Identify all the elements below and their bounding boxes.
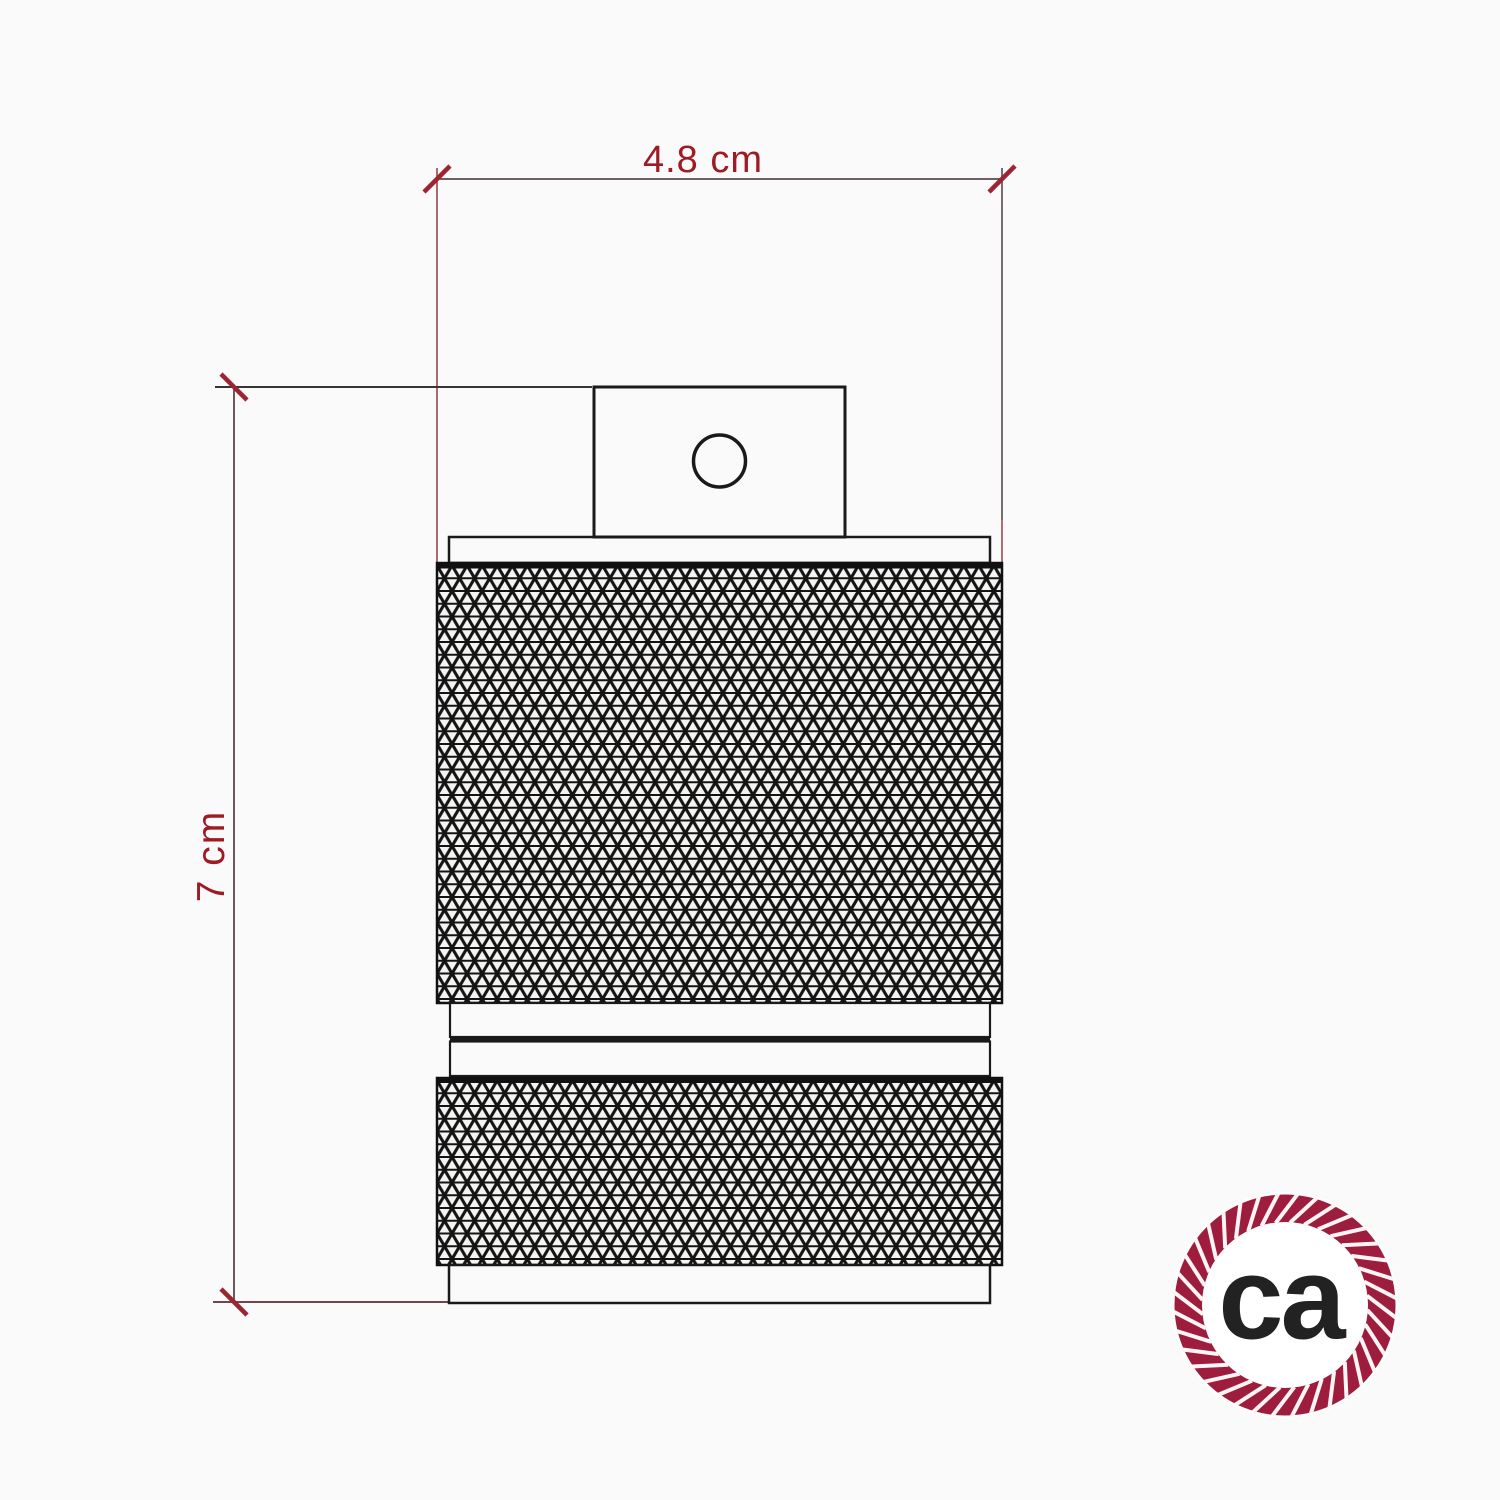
svg-text:ca: ca [1218,1233,1346,1364]
svg-text:7 cm: 7 cm [190,810,233,903]
svg-text:4.8 cm: 4.8 cm [643,139,763,181]
